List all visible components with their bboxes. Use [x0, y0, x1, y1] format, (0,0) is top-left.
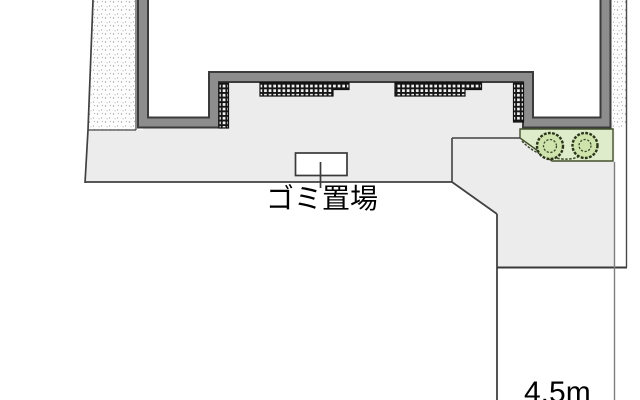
east-boundary-stipple [613, 0, 627, 128]
balcony-strip-west [219, 83, 229, 128]
balcony-strip-east [514, 83, 524, 122]
west-boundary-stipple [88, 0, 136, 130]
road-width-label: 4.5m [524, 377, 591, 400]
shrub-icon [573, 133, 598, 158]
shrub-icon [537, 133, 563, 159]
garbage-area-label: ゴミ置場 [264, 184, 380, 213]
site-plan: ゴミ置場 4.5m [0, 0, 640, 400]
paving-area [85, 77, 615, 267]
